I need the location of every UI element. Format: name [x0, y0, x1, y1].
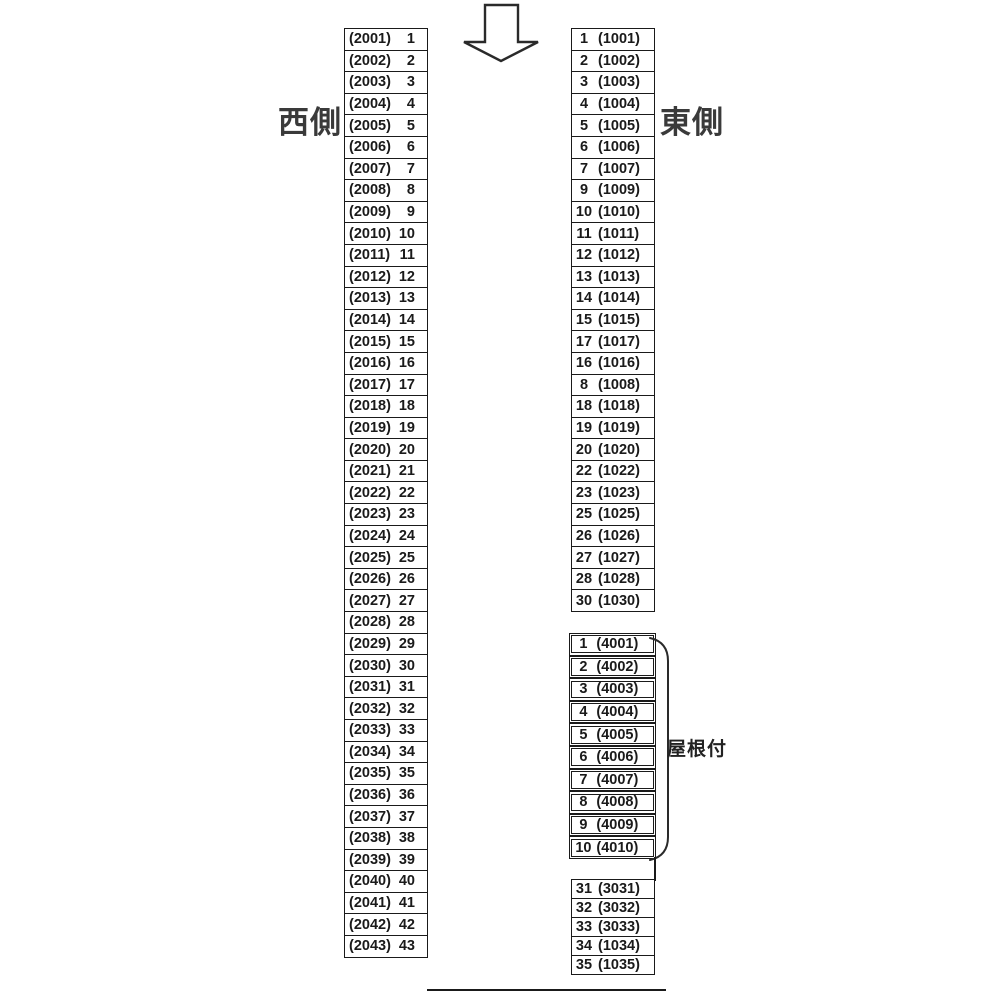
space-number: 30: [395, 658, 415, 674]
space-code: (1013): [598, 269, 640, 285]
parking-cell: (2043) 43: [345, 936, 427, 957]
parking-cell: 9 (1009): [572, 180, 654, 202]
roofed-cell-inner: 10 (4010): [571, 839, 653, 857]
parking-cell: (2039) 39: [345, 850, 427, 872]
space-code: (4002): [596, 659, 638, 675]
space-code: (2023): [349, 506, 391, 522]
space-code: (2034): [349, 744, 391, 760]
space-number: 11: [572, 226, 596, 242]
parking-cell: (2006) 6: [345, 137, 427, 159]
space-code: (1030): [598, 593, 640, 609]
space-number: 34: [395, 744, 415, 760]
space-code: (2016): [349, 355, 391, 371]
space-number: 8: [572, 794, 594, 810]
space-number: 7: [572, 772, 594, 788]
parking-cell: (2029) 29: [345, 634, 427, 656]
roofed-label: 屋根付: [667, 734, 727, 761]
parking-cell: 2 (1002): [572, 51, 654, 73]
parking-cell: 13 (1013): [572, 267, 654, 289]
parking-cell: (2011) 11: [345, 245, 427, 267]
parking-cell: 5 (1005): [572, 115, 654, 137]
space-code: (2030): [349, 658, 391, 674]
parking-cell: 32 (3032): [572, 899, 654, 918]
space-number: 31: [572, 881, 596, 897]
space-number: 4: [395, 96, 415, 112]
space-number: 1: [572, 31, 596, 47]
parking-cell: (2016) 16: [345, 353, 427, 375]
space-number: 33: [395, 722, 415, 738]
space-number: 30: [572, 593, 596, 609]
space-number: 15: [395, 334, 415, 350]
parking-cell: (2017) 17: [345, 375, 427, 397]
space-number: 28: [395, 614, 415, 630]
parking-cell: 23 (1023): [572, 482, 654, 504]
space-number: 4: [572, 704, 594, 720]
space-code: (1012): [598, 247, 640, 263]
space-code: (1015): [598, 312, 640, 328]
space-number: 17: [395, 377, 415, 393]
space-number: 16: [572, 355, 596, 371]
space-number: 3: [395, 74, 415, 90]
parking-lot-diagram: 西側 東側 (2001) 1 (2002) 2 (2003) 3 (2004) …: [0, 0, 1000, 1000]
space-number: 3: [572, 74, 596, 90]
parking-cell: 35 (1035): [572, 956, 654, 974]
space-code: (1020): [598, 442, 640, 458]
space-number: 5: [572, 118, 596, 134]
east-column-roofed: 1 (4001) 2 (4002) 3 (4003) 4 (4004) 5 (4…: [569, 633, 656, 859]
parking-cell: 31 (3031): [572, 880, 654, 899]
parking-cell: (2019) 19: [345, 418, 427, 440]
parking-cell: (2022) 22: [345, 482, 427, 504]
east-column-top: 1 (1001) 2 (1002) 3 (1003) 4 (1004) 5 (1…: [571, 28, 655, 612]
parking-cell: (2005) 5: [345, 115, 427, 137]
space-code: (2020): [349, 442, 391, 458]
parking-cell: (2014) 14: [345, 310, 427, 332]
parking-cell: (2004) 4: [345, 94, 427, 116]
space-number: 12: [572, 247, 596, 263]
space-code: (1005): [598, 118, 640, 134]
space-code: (2013): [349, 290, 391, 306]
space-number: 1: [395, 31, 415, 47]
space-code: (2014): [349, 312, 391, 328]
space-number: 18: [572, 398, 596, 414]
parking-cell: (2020) 20: [345, 439, 427, 461]
space-code: (4008): [596, 794, 638, 810]
roofed-cell-inner: 8 (4008): [571, 794, 653, 812]
parking-cell: 17 (1017): [572, 331, 654, 353]
space-code: (4010): [596, 840, 638, 856]
space-number: 13: [395, 290, 415, 306]
roofed-parking-cell: 6 (4006): [569, 746, 656, 769]
parking-cell: (2010) 10: [345, 223, 427, 245]
parking-cell: (2026) 26: [345, 569, 427, 591]
space-code: (1022): [598, 463, 640, 479]
parking-cell: (2018) 18: [345, 396, 427, 418]
parking-cell: 18 (1018): [572, 396, 654, 418]
space-number: 21: [395, 463, 415, 479]
space-number: 7: [395, 161, 415, 177]
space-number: 5: [395, 118, 415, 134]
space-code: (1001): [598, 31, 640, 47]
space-code: (3032): [598, 900, 640, 916]
parking-cell: 10 (1010): [572, 202, 654, 224]
space-code: (2033): [349, 722, 391, 738]
roofed-parking-cell: 10 (4010): [569, 836, 656, 859]
space-code: (2010): [349, 226, 391, 242]
space-number: 26: [572, 528, 596, 544]
space-code: (1025): [598, 506, 640, 522]
roofed-parking-cell: 8 (4008): [569, 791, 656, 814]
space-code: (2041): [349, 895, 391, 911]
space-code: (3031): [598, 881, 640, 897]
space-code: (2022): [349, 485, 391, 501]
parking-cell: (2003) 3: [345, 72, 427, 94]
space-number: 36: [395, 787, 415, 803]
parking-cell: (2024) 24: [345, 526, 427, 548]
space-code: (2001): [349, 31, 391, 47]
space-code: (2012): [349, 269, 391, 285]
roofed-cell-inner: 5 (4005): [571, 726, 653, 744]
parking-cell: (2012) 12: [345, 267, 427, 289]
space-code: (4006): [596, 749, 638, 765]
space-code: (2039): [349, 852, 391, 868]
space-code: (2011): [349, 247, 390, 263]
roofed-cell-inner: 1 (4001): [571, 635, 653, 653]
east-column-gap-line: [654, 857, 656, 881]
space-code: (1009): [598, 182, 640, 198]
space-code: (1016): [598, 355, 640, 371]
space-code: (2018): [349, 398, 391, 414]
east-side-label: 東側: [660, 107, 724, 138]
space-number: 6: [395, 139, 415, 155]
space-code: (1006): [598, 139, 640, 155]
east-column-bottom: 31 (3031) 32 (3032) 33 (3033) 34 (1034) …: [571, 879, 655, 975]
space-code: (1017): [598, 334, 640, 350]
parking-cell: (2035) 35: [345, 763, 427, 785]
space-number: 27: [395, 593, 415, 609]
space-number: 2: [572, 659, 594, 675]
roofed-parking-cell: 9 (4009): [569, 814, 656, 837]
space-code: (2040): [349, 873, 391, 889]
parking-cell: (2038) 38: [345, 828, 427, 850]
parking-cell: 22 (1022): [572, 461, 654, 483]
space-code: (2035): [349, 765, 391, 781]
space-code: (2002): [349, 53, 391, 69]
parking-cell: (2032) 32: [345, 698, 427, 720]
space-number: 9: [395, 204, 415, 220]
space-number: 23: [572, 485, 596, 501]
space-number: 14: [395, 312, 415, 328]
space-number: 27: [572, 550, 596, 566]
space-code: (4007): [596, 772, 638, 788]
parking-cell: (2037) 37: [345, 806, 427, 828]
space-number: 17: [572, 334, 596, 350]
space-code: (1027): [598, 550, 640, 566]
parking-cell: (2031) 31: [345, 677, 427, 699]
space-code: (2028): [349, 614, 391, 630]
space-number: 11: [395, 247, 415, 263]
space-code: (3033): [598, 919, 640, 935]
space-code: (2003): [349, 74, 391, 90]
parking-cell: 30 (1030): [572, 590, 654, 611]
space-number: 16: [395, 355, 415, 371]
space-number: 37: [395, 809, 415, 825]
parking-cell: 3 (1003): [572, 72, 654, 94]
roofed-parking-cell: 2 (4002): [569, 656, 656, 679]
space-number: 22: [395, 485, 415, 501]
space-code: (2026): [349, 571, 391, 587]
space-code: (2042): [349, 917, 391, 933]
parking-cell: 27 (1027): [572, 547, 654, 569]
parking-cell: (2002) 2: [345, 51, 427, 73]
parking-cell: 4 (1004): [572, 94, 654, 116]
space-code: (2015): [349, 334, 391, 350]
space-number: 28: [572, 571, 596, 587]
roofed-parking-cell: 5 (4005): [569, 723, 656, 746]
parking-cell: (2041) 41: [345, 893, 427, 915]
space-code: (2006): [349, 139, 391, 155]
parking-cell: 8 (1008): [572, 375, 654, 397]
space-code: (4003): [596, 681, 638, 697]
space-number: 4: [572, 96, 596, 112]
parking-cell: 16 (1016): [572, 353, 654, 375]
parking-cell: 15 (1015): [572, 310, 654, 332]
space-number: 19: [572, 420, 596, 436]
space-code: (1014): [598, 290, 640, 306]
parking-cell: 7 (1007): [572, 159, 654, 181]
space-number: 7: [572, 161, 596, 177]
down-arrow-icon: [452, 2, 552, 66]
space-number: 9: [572, 817, 594, 833]
space-code: (2043): [349, 938, 391, 954]
parking-cell: (2028) 28: [345, 612, 427, 634]
space-code: (2021): [349, 463, 391, 479]
space-code: (4004): [596, 704, 638, 720]
space-number: 3: [572, 681, 594, 697]
roofed-cell-inner: 6 (4006): [571, 748, 653, 766]
roofed-parking-cell: 7 (4007): [569, 769, 656, 792]
space-code: (1019): [598, 420, 640, 436]
space-code: (1011): [598, 226, 639, 242]
space-code: (2036): [349, 787, 391, 803]
space-number: 10: [395, 226, 415, 242]
parking-cell: (2036) 36: [345, 785, 427, 807]
space-number: 14: [572, 290, 596, 306]
parking-cell: 34 (1034): [572, 937, 654, 956]
space-code: (1028): [598, 571, 640, 587]
space-code: (1008): [598, 377, 640, 393]
space-number: 23: [395, 506, 415, 522]
space-number: 25: [395, 550, 415, 566]
space-code: (2017): [349, 377, 391, 393]
roofed-cell-inner: 7 (4007): [571, 771, 653, 789]
space-number: 15: [572, 312, 596, 328]
space-code: (1007): [598, 161, 640, 177]
parking-cell: 28 (1028): [572, 569, 654, 591]
space-number: 2: [395, 53, 415, 69]
parking-cell: (2009) 9: [345, 202, 427, 224]
space-code: (2025): [349, 550, 391, 566]
parking-cell: 33 (3033): [572, 918, 654, 937]
west-side-label: 西側: [278, 107, 342, 138]
space-number: 25: [572, 506, 596, 522]
space-number: 10: [572, 204, 596, 220]
space-number: 33: [572, 919, 596, 935]
space-code: (1004): [598, 96, 640, 112]
roofed-parking-cell: 1 (4001): [569, 633, 656, 656]
space-number: 40: [395, 873, 415, 889]
parking-cell: 20 (1020): [572, 439, 654, 461]
space-number: 29: [395, 636, 415, 652]
space-number: 5: [572, 727, 594, 743]
space-number: 22: [572, 463, 596, 479]
parking-cell: 11 (1011): [572, 223, 654, 245]
space-number: 19: [395, 420, 415, 436]
space-number: 1: [572, 636, 594, 652]
space-code: (1010): [598, 204, 640, 220]
parking-cell: (2015) 15: [345, 331, 427, 353]
parking-cell: (2030) 30: [345, 655, 427, 677]
space-number: 8: [572, 377, 596, 393]
space-number: 2: [572, 53, 596, 69]
parking-cell: (2042) 42: [345, 914, 427, 936]
space-number: 41: [395, 895, 415, 911]
parking-cell: 26 (1026): [572, 526, 654, 548]
space-number: 13: [572, 269, 596, 285]
space-code: (2037): [349, 809, 391, 825]
parking-cell: (2025) 25: [345, 547, 427, 569]
space-code: (2008): [349, 182, 391, 198]
space-number: 32: [395, 701, 415, 717]
parking-cell: 19 (1019): [572, 418, 654, 440]
parking-cell: (2007) 7: [345, 159, 427, 181]
parking-cell: (2008) 8: [345, 180, 427, 202]
bottom-boundary-line: [427, 989, 666, 991]
space-number: 26: [395, 571, 415, 587]
space-code: (2027): [349, 593, 391, 609]
space-number: 6: [572, 139, 596, 155]
space-code: (1023): [598, 485, 640, 501]
parking-cell: 25 (1025): [572, 504, 654, 526]
space-number: 8: [395, 182, 415, 198]
parking-cell: (2001) 1: [345, 29, 427, 51]
space-number: 9: [572, 182, 596, 198]
space-number: 35: [572, 957, 596, 973]
parking-cell: (2013) 13: [345, 288, 427, 310]
space-code: (2009): [349, 204, 391, 220]
space-number: 24: [395, 528, 415, 544]
space-number: 32: [572, 900, 596, 916]
space-code: (2007): [349, 161, 391, 177]
space-number: 43: [395, 938, 415, 954]
parking-cell: (2021) 21: [345, 461, 427, 483]
parking-cell: (2040) 40: [345, 871, 427, 893]
space-number: 31: [395, 679, 415, 695]
space-number: 42: [395, 917, 415, 933]
space-code: (1035): [598, 957, 640, 973]
space-number: 35: [395, 765, 415, 781]
space-code: (1003): [598, 74, 640, 90]
roofed-cell-inner: 4 (4004): [571, 703, 653, 721]
parking-cell: 12 (1012): [572, 245, 654, 267]
space-number: 6: [572, 749, 594, 765]
space-number: 12: [395, 269, 415, 285]
parking-cell: (2023) 23: [345, 504, 427, 526]
space-code: (2004): [349, 96, 391, 112]
space-code: (2031): [349, 679, 391, 695]
space-code: (1026): [598, 528, 640, 544]
space-code: (1002): [598, 53, 640, 69]
roofed-parking-cell: 3 (4003): [569, 678, 656, 701]
space-number: 20: [572, 442, 596, 458]
parking-cell: 1 (1001): [572, 29, 654, 51]
parking-cell: (2033) 33: [345, 720, 427, 742]
space-code: (2019): [349, 420, 391, 436]
space-code: (2029): [349, 636, 391, 652]
roofed-cell-inner: 9 (4009): [571, 816, 653, 834]
roofed-cell-inner: 2 (4002): [571, 658, 653, 676]
space-code: (4009): [596, 817, 638, 833]
parking-cell: (2027) 27: [345, 590, 427, 612]
space-number: 38: [395, 830, 415, 846]
west-column: (2001) 1 (2002) 2 (2003) 3 (2004) 4 (200…: [344, 28, 428, 958]
space-number: 10: [572, 840, 594, 856]
space-code: (4001): [596, 636, 638, 652]
space-code: (4005): [596, 727, 638, 743]
space-code: (2032): [349, 701, 391, 717]
space-number: 34: [572, 938, 596, 954]
roofed-cell-inner: 3 (4003): [571, 681, 653, 699]
space-code: (2024): [349, 528, 391, 544]
parking-cell: 6 (1006): [572, 137, 654, 159]
space-code: (2038): [349, 830, 391, 846]
space-code: (2005): [349, 118, 391, 134]
parking-cell: (2034) 34: [345, 742, 427, 764]
space-code: (1018): [598, 398, 640, 414]
space-number: 18: [395, 398, 415, 414]
roofed-parking-cell: 4 (4004): [569, 701, 656, 724]
parking-cell: 14 (1014): [572, 288, 654, 310]
space-number: 39: [395, 852, 415, 868]
space-code: (1034): [598, 938, 640, 954]
space-number: 20: [395, 442, 415, 458]
